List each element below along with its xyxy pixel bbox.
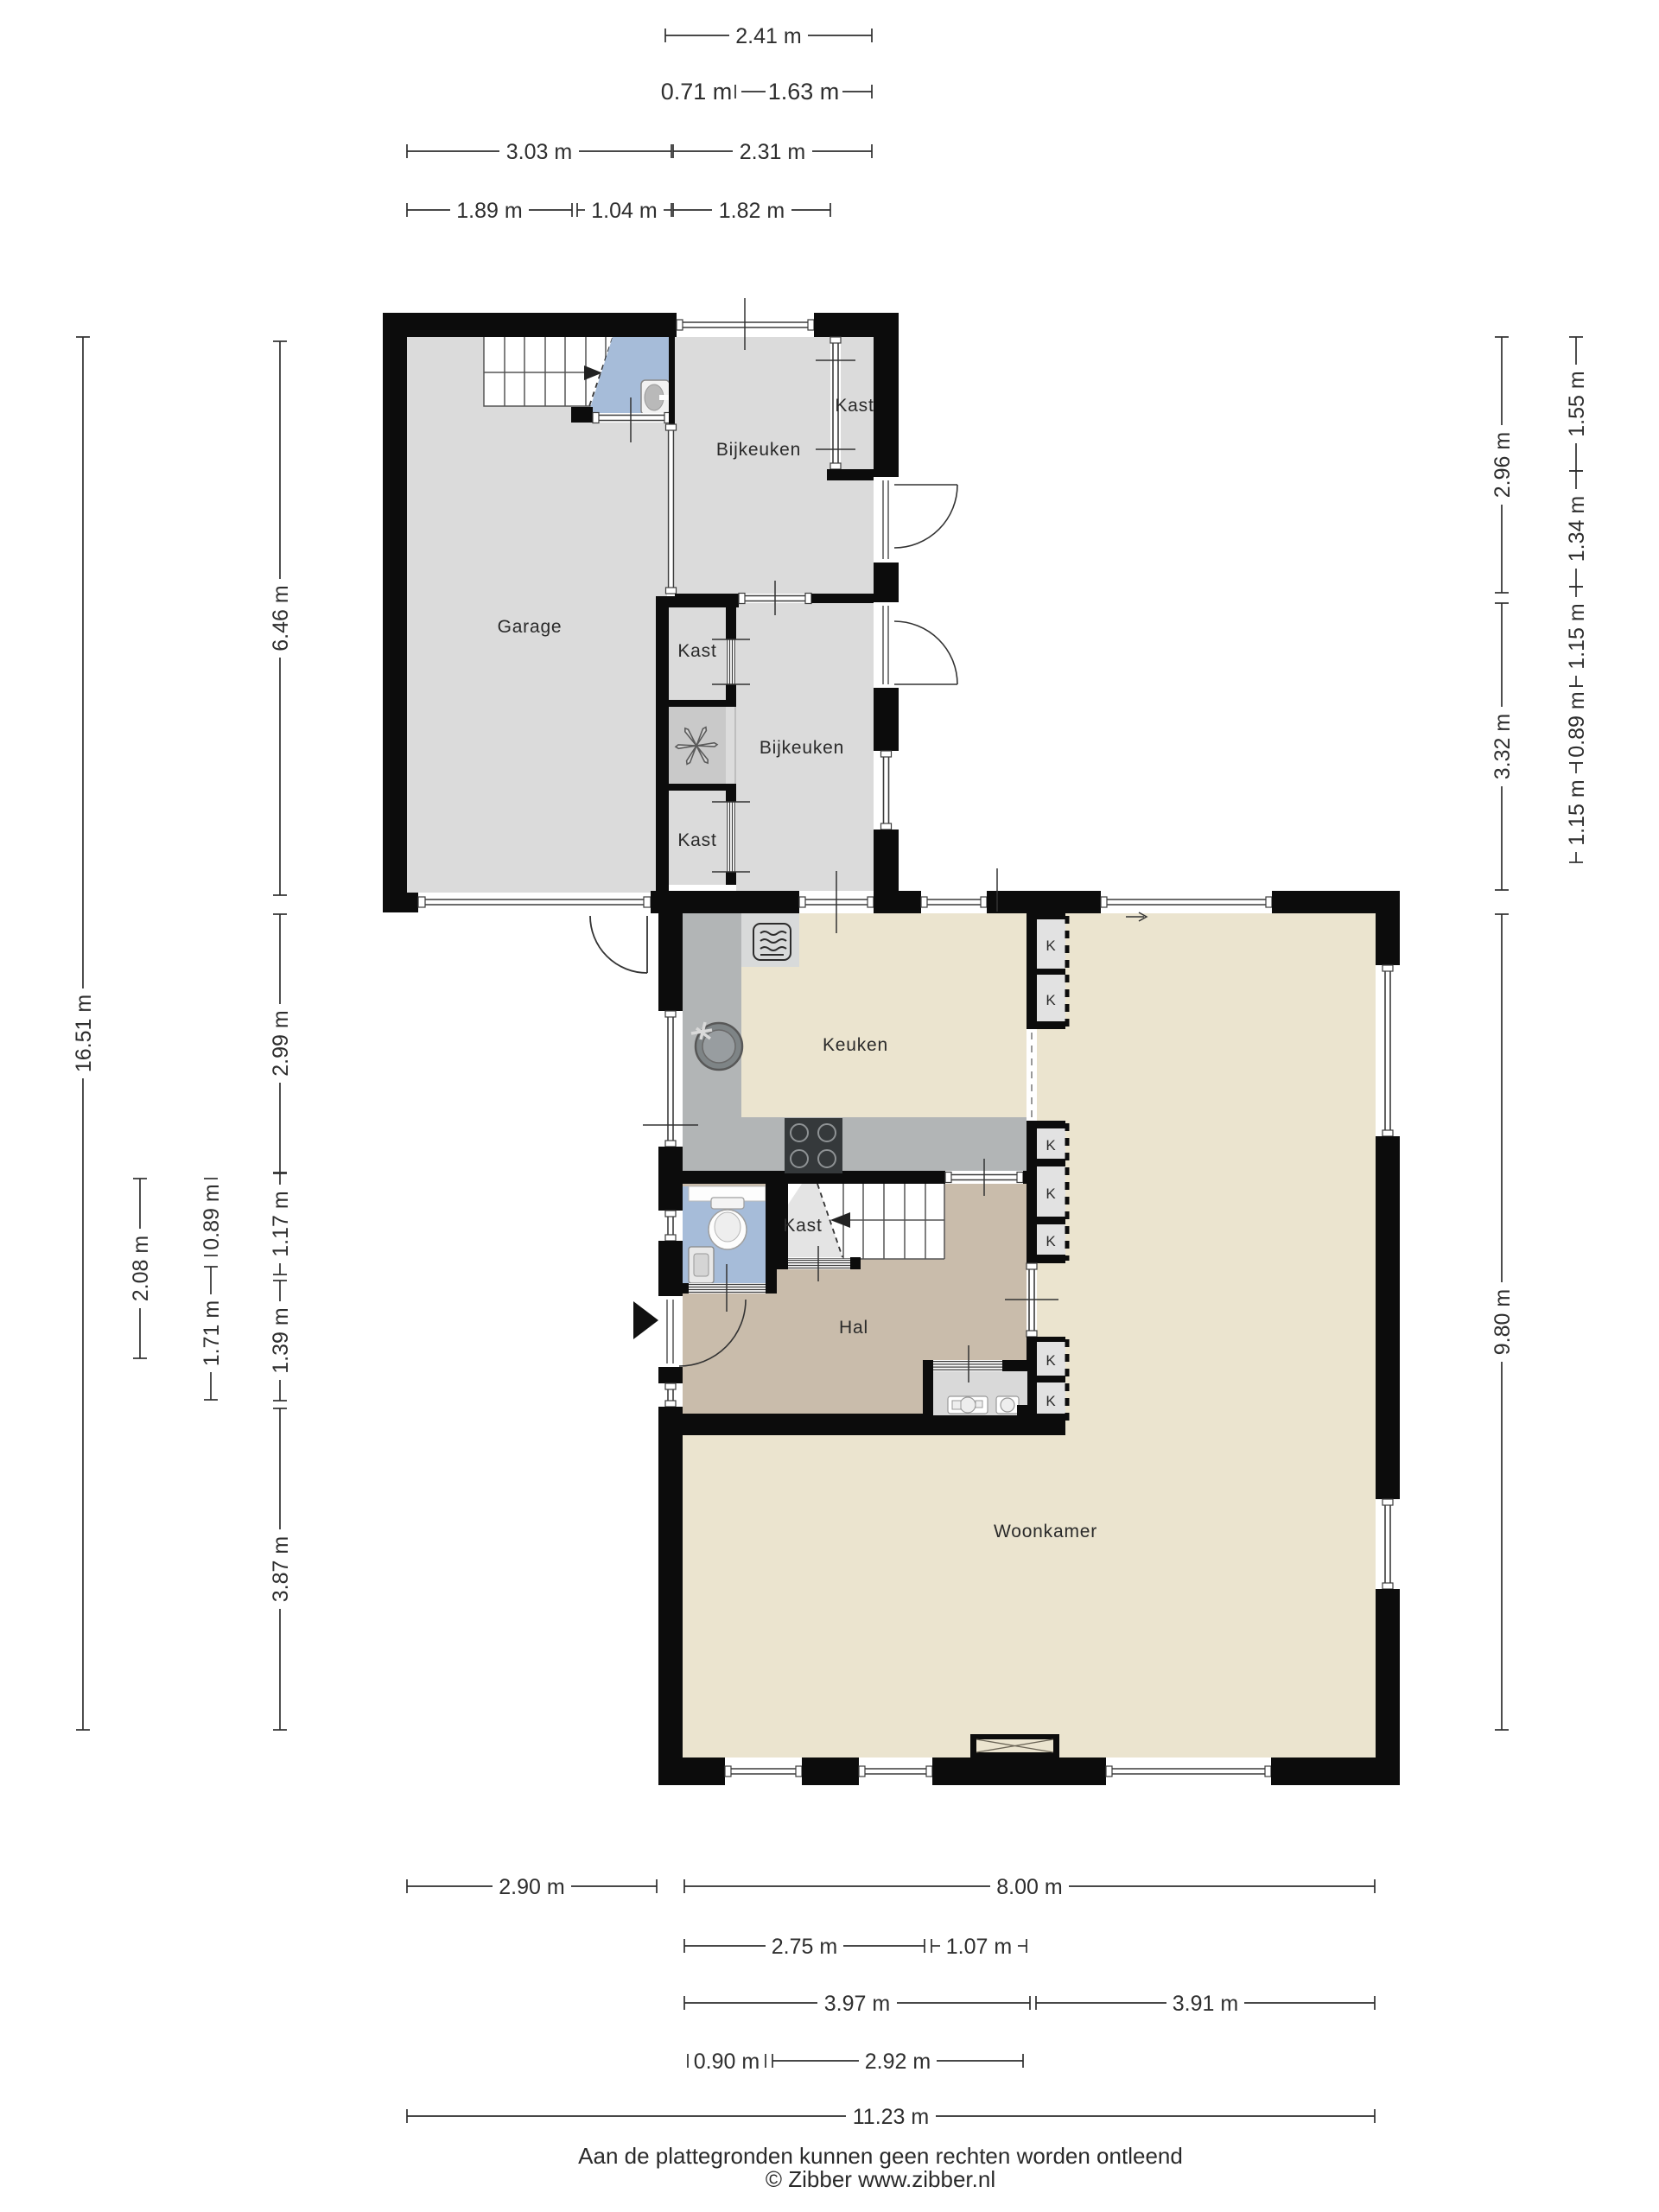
svg-text:11.23 m: 11.23 m	[853, 2105, 929, 2129]
svg-text:Woonkamer: Woonkamer	[994, 1522, 1097, 1541]
svg-text:Kast: Kast	[835, 396, 874, 416]
svg-text:1.04 m: 1.04 m	[591, 199, 657, 223]
svg-text:0.89 m: 0.89 m	[1565, 691, 1589, 757]
svg-text:K: K	[1046, 1352, 1056, 1369]
svg-text:Kast: Kast	[783, 1216, 822, 1236]
svg-text:3.87 m: 3.87 m	[269, 1536, 293, 1602]
svg-text:K: K	[1046, 1185, 1056, 1202]
svg-text:1.15 m: 1.15 m	[1565, 779, 1589, 845]
svg-text:K: K	[1046, 1393, 1056, 1409]
svg-text:Keuken: Keuken	[823, 1035, 888, 1055]
svg-text:0.71 m: 0.71 m	[661, 79, 733, 105]
svg-text:0.89 m: 0.89 m	[200, 1184, 224, 1249]
svg-text:Garage: Garage	[498, 617, 563, 637]
svg-text:1.34 m: 1.34 m	[1565, 496, 1589, 562]
svg-text:2.41 m: 2.41 m	[735, 24, 801, 48]
svg-text:K: K	[1046, 1233, 1056, 1249]
svg-text:1.39 m: 1.39 m	[269, 1307, 293, 1373]
svg-text:© Zibber www.zibber.nl: © Zibber www.zibber.nl	[766, 2166, 995, 2192]
svg-text:3.32 m: 3.32 m	[1491, 714, 1515, 779]
svg-text:K: K	[1046, 992, 1056, 1008]
svg-text:2.92 m: 2.92 m	[865, 2050, 931, 2074]
svg-text:1.55 m: 1.55 m	[1565, 371, 1589, 436]
svg-text:1.89 m: 1.89 m	[456, 199, 522, 223]
svg-text:3.97 m: 3.97 m	[824, 1992, 890, 2016]
svg-text:Kast: Kast	[677, 641, 716, 661]
svg-text:8.00 m: 8.00 m	[996, 1875, 1062, 1899]
svg-text:Aan de plattegronden kunnen ge: Aan de plattegronden kunnen geen rechten…	[578, 2143, 1183, 2169]
svg-text:6.46 m: 6.46 m	[269, 585, 293, 651]
svg-text:9.80 m: 9.80 m	[1491, 1289, 1515, 1355]
svg-text:16.51 m: 16.51 m	[72, 995, 96, 1072]
svg-text:Hal: Hal	[839, 1318, 868, 1338]
svg-text:2.96 m: 2.96 m	[1491, 432, 1515, 498]
svg-text:1.15 m: 1.15 m	[1565, 603, 1589, 669]
svg-text:1.71 m: 1.71 m	[200, 1300, 224, 1366]
svg-text:1.17 m: 1.17 m	[269, 1191, 293, 1256]
svg-text:3.03 m: 3.03 m	[506, 140, 572, 164]
svg-text:1.07 m: 1.07 m	[946, 1935, 1012, 1959]
svg-text:1.82 m: 1.82 m	[719, 199, 785, 223]
svg-text:2.99 m: 2.99 m	[269, 1010, 293, 1076]
svg-text:2.08 m: 2.08 m	[129, 1236, 153, 1301]
svg-text:Kast: Kast	[677, 830, 716, 850]
svg-text:2.31 m: 2.31 m	[740, 140, 805, 164]
svg-text:K: K	[1046, 938, 1056, 954]
svg-text:3.91 m: 3.91 m	[1173, 1992, 1238, 2016]
svg-text:2.75 m: 2.75 m	[772, 1935, 837, 1959]
svg-text:1.63 m: 1.63 m	[768, 79, 840, 105]
svg-text:Bijkeuken: Bijkeuken	[760, 738, 844, 758]
svg-text:0.90 m: 0.90 m	[694, 2050, 760, 2074]
svg-text:K: K	[1046, 1137, 1056, 1154]
svg-text:2.90 m: 2.90 m	[499, 1875, 564, 1899]
svg-text:Bijkeuken: Bijkeuken	[716, 440, 801, 460]
